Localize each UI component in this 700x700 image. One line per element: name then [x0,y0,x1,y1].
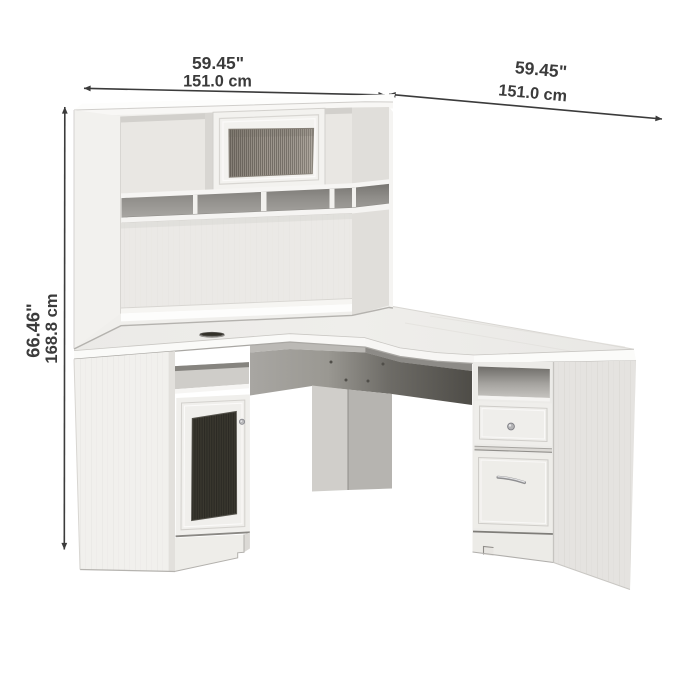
svg-text:66.46": 66.46" [23,303,44,357]
svg-text:168.8 cm: 168.8 cm [42,293,61,363]
svg-text:151.0 cm: 151.0 cm [183,73,252,91]
svg-text:59.45": 59.45" [192,53,244,73]
